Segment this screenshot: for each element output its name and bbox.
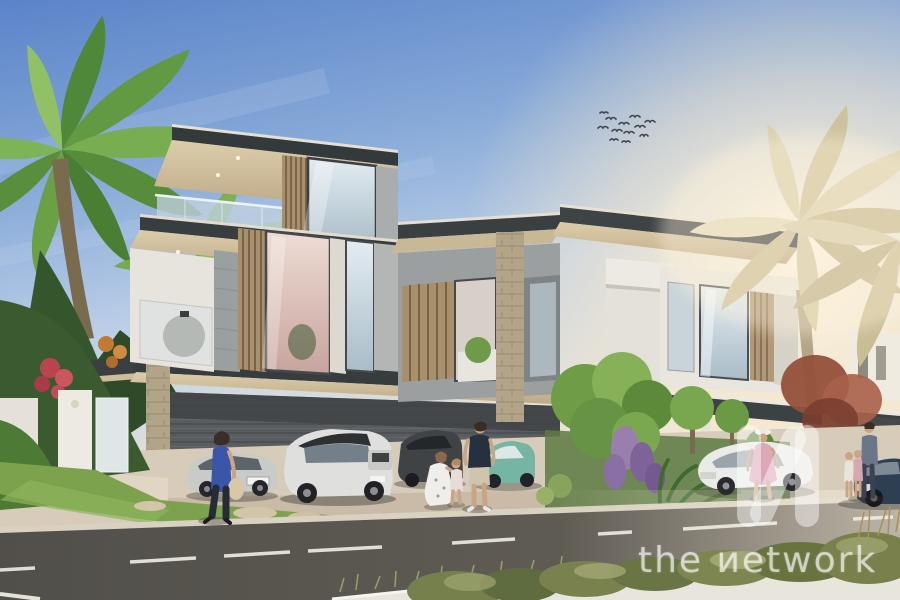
white-landrover-suv — [280, 429, 396, 506]
render-image: the иetwork — [0, 0, 900, 600]
scene-canvas — [0, 0, 900, 600]
stone-column-center — [496, 232, 524, 422]
watermark-logo network-monogram-icon — [749, 437, 807, 515]
center-block — [392, 212, 560, 422]
